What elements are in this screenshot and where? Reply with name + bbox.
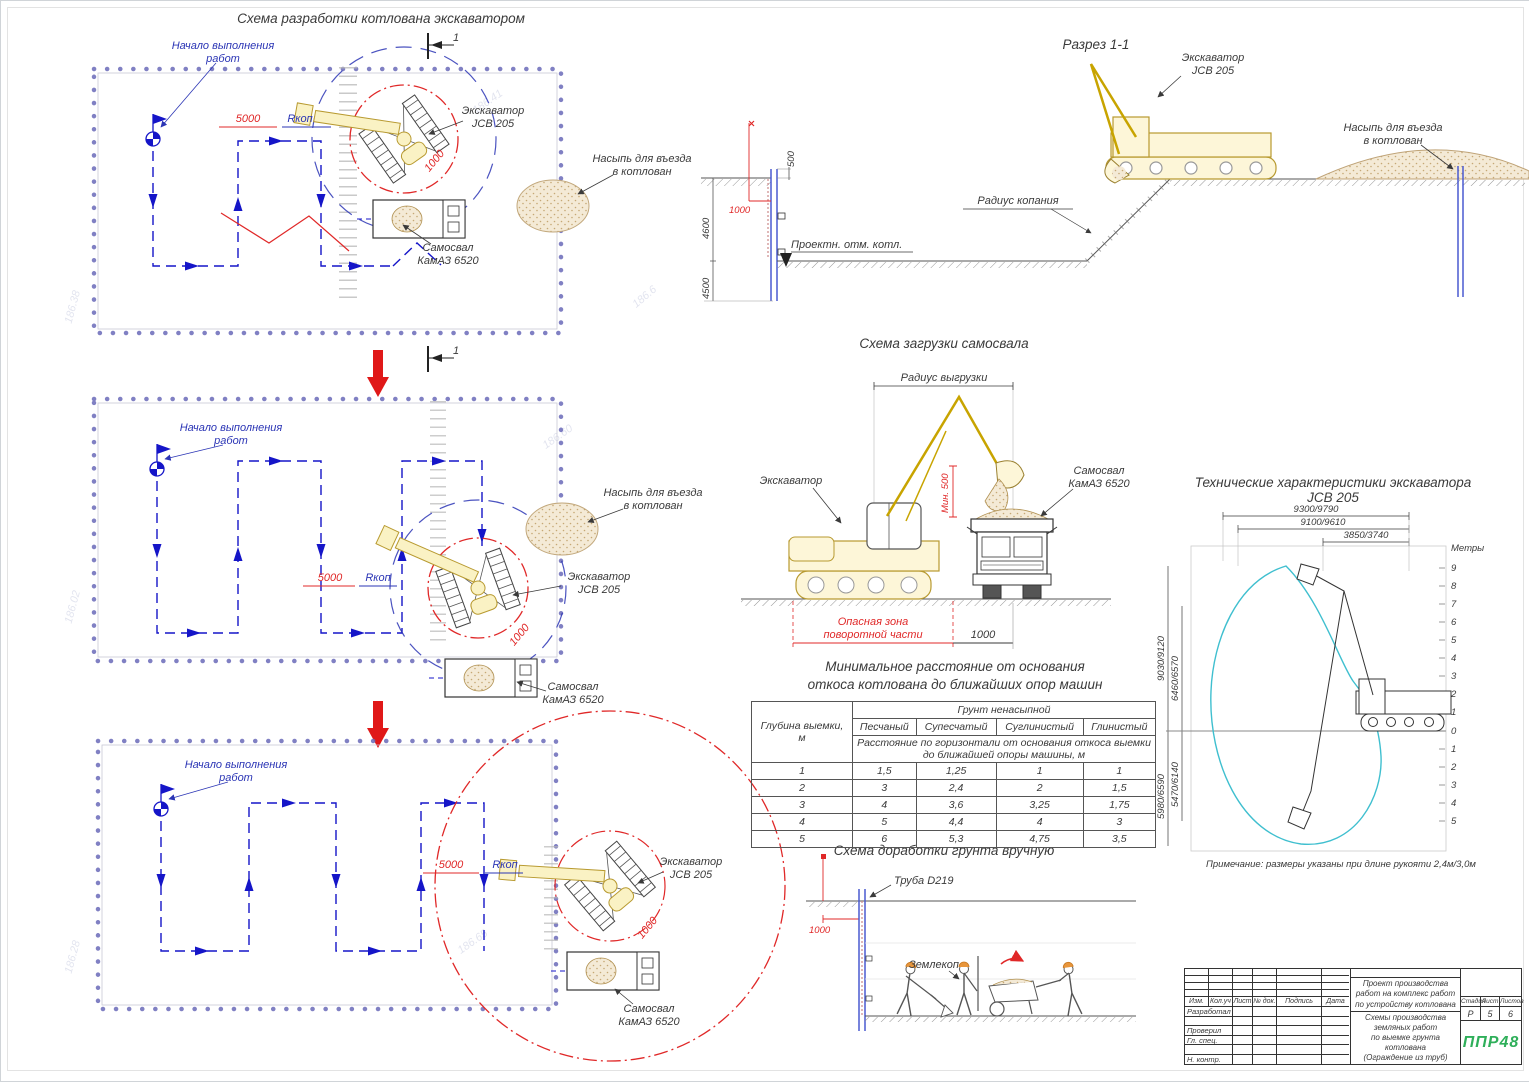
truck-label: Самосвал <box>623 1003 674 1015</box>
excavator-top-view <box>490 795 655 961</box>
start-label: работ <box>213 435 248 447</box>
signature-rows: Разработал Проверил Гл. спец. Н. контр. <box>1185 1007 1350 1065</box>
start-flag <box>154 784 175 816</box>
sheets-total: 6 <box>1500 1007 1521 1021</box>
dump-truck-top-view <box>429 659 537 697</box>
drawing-canvas: Схема разработки котлована экскаватором … <box>1 1 1529 1081</box>
start-label: Начало выполнения <box>185 759 288 771</box>
motion-arrow <box>1001 959 1023 964</box>
dim-5000: 5000 <box>236 113 261 125</box>
table-row: 343,63,251,75 <box>752 797 1156 814</box>
ramp-mound <box>526 503 598 555</box>
section-mark-number: 1 <box>453 32 459 44</box>
ground-hatch <box>701 179 771 186</box>
sheet-number: 5 <box>1481 1007 1500 1021</box>
start-label: работ <box>205 53 240 65</box>
company-logo: ППР48 <box>1461 1021 1521 1064</box>
excavator-model-label: JCB 205 <box>577 584 621 596</box>
excavator-label: Экскаватор <box>660 856 722 868</box>
dim-4600: 4600 <box>701 217 712 239</box>
dim-1000: 1000 <box>635 914 660 941</box>
table-title: Минимальное расстояние от основания <box>751 658 1159 676</box>
ramp-mound-section <box>1316 150 1529 179</box>
stage-value: Р <box>1461 1007 1481 1021</box>
min-500-label: Мин. 500 <box>940 473 951 513</box>
tech-title: Технические характеристики экскаватора <box>1195 475 1472 490</box>
truck-label: Самосвал <box>547 681 598 693</box>
scale-tick: 4 <box>1451 653 1456 664</box>
section-title: Разрез 1-1 <box>1063 37 1130 52</box>
start-label: Начало выполнения <box>172 40 275 52</box>
table-row: 454,443 <box>752 814 1156 831</box>
truck-model-label: КамАЗ 6520 <box>1068 478 1130 490</box>
excavator-side-view <box>1091 64 1276 183</box>
dim-5000: 5000 <box>439 859 464 871</box>
soil-header: Песчаный <box>853 719 917 736</box>
excavator-model-label: JCB 205 <box>1191 65 1235 77</box>
plan-3: Начало выполнения работ 5000 Rкоп 1000 Э… <box>98 711 785 1061</box>
dig-radius-label: Радиус копания <box>977 195 1058 207</box>
dim-top-1: 9300/9790 <box>1294 504 1340 515</box>
dim-4500: 4500 <box>701 277 712 299</box>
truck-model-label: КамАЗ 6520 <box>417 255 479 267</box>
table-row: 11,51,2511 <box>752 763 1156 780</box>
scale-unit: Метры <box>1451 543 1484 554</box>
stage-values: Р 5 6 <box>1461 1007 1521 1021</box>
mound-label: Насыпь для въезда <box>603 487 702 499</box>
scale-tick: 9 <box>1451 563 1457 574</box>
design-level-label: Проектн. отм. котл. <box>791 239 902 251</box>
truck-label: Самосвал <box>422 242 473 254</box>
mound-label: в котлован <box>612 166 671 178</box>
truck-model-label: КамАЗ 6520 <box>618 1016 680 1028</box>
scale-tick: 3 <box>1451 671 1457 682</box>
sheet-title: Схемы производства земляных работ по вые… <box>1351 1012 1460 1064</box>
truck-label: Самосвал <box>1073 465 1124 477</box>
soil-header: Глинистый <box>1083 719 1155 736</box>
col-depth-header: Глубина выемки,м <box>752 702 853 763</box>
dim-rkop: Rкоп <box>365 572 390 584</box>
tech-note: Примечание: размеры указаны при длине ру… <box>1206 859 1476 870</box>
excavator-label: Экскаватор <box>1182 52 1244 64</box>
dim-rkop: Rкоп <box>492 859 517 871</box>
plan-title: Схема разработки котлована экскаватором <box>237 11 525 26</box>
drawing-sheet: 186.38 186.41 186.6 186.02 186.60 186.65… <box>0 0 1529 1082</box>
excavator-model-label: JCB 205 <box>471 118 515 130</box>
soil-header: Суглинистый <box>996 719 1083 736</box>
start-flag <box>146 114 167 146</box>
excavator-model-label: JCB 205 <box>669 869 713 881</box>
ramp-mound <box>517 180 589 232</box>
section-1-1: Разрез 1-1 500 1000 4600 4500 Радиус коп… <box>701 37 1529 301</box>
scale-tick: 1 <box>1451 707 1456 718</box>
plan-2: Начало выполнения работ 5000 Rкоп 1000 Э… <box>94 399 703 706</box>
loading-scheme: Схема загрузки самосвала Радиус выгрузки… <box>741 336 1131 649</box>
danger-zone-label: Опасная зона <box>838 616 909 628</box>
excavator-label: Экскаватор <box>462 105 524 117</box>
dump-truck-front-view <box>967 509 1057 598</box>
section-mark-number: 1 <box>453 345 459 357</box>
mound-label: Насыпь для въезда <box>592 153 691 165</box>
scale-tick: 0 <box>1451 726 1457 737</box>
start-flag <box>150 444 171 476</box>
tech-title-model: JCB 205 <box>1306 490 1359 505</box>
pipe-fence <box>94 399 561 661</box>
mound-label: в котлован <box>623 500 682 512</box>
dim-1000: 1000 <box>729 205 751 216</box>
revision-grid <box>1185 969 1350 997</box>
sub-header: Расстояние по горизонтали от основания о… <box>853 736 1156 763</box>
dim-rkop: Rкоп <box>287 113 312 125</box>
dim-500: 500 <box>786 150 797 167</box>
dim-left-4: 5470/6140 <box>1170 761 1181 807</box>
scale-tick: 5 <box>1451 816 1457 827</box>
truck-model-label: КамАЗ 6520 <box>542 694 604 706</box>
start-label: работ <box>218 772 253 784</box>
soil-header: Супесчатый <box>916 719 996 736</box>
table-title: откоса котлована до ближайших опор машин <box>751 676 1159 694</box>
section-mark <box>428 346 454 372</box>
start-label: Начало выполнения <box>180 422 283 434</box>
loading-title: Схема загрузки самосвала <box>859 336 1029 351</box>
revision-header: Изм.Кол.уч Лист№ док. ПодписьДата <box>1185 997 1350 1007</box>
scale-tick: 1 <box>1451 744 1456 755</box>
excavator-label: Экскаватор <box>760 475 822 487</box>
dim-1000: 1000 <box>809 925 831 936</box>
scale-tick: 2 <box>1450 762 1457 773</box>
scale-tick: 7 <box>1451 599 1457 610</box>
pipe-label: Труба D219 <box>894 875 954 887</box>
project-title: Проект производства работ на комплекс ра… <box>1351 978 1460 1012</box>
dim-top-2: 9100/9610 <box>1301 517 1347 528</box>
excavator-top-view <box>371 491 520 644</box>
table-row: 565,34,753,5 <box>752 831 1156 848</box>
dim-5000: 5000 <box>318 572 343 584</box>
group-header: Грунт ненасыпной <box>853 702 1156 719</box>
excavator-envelope-view <box>1288 564 1451 829</box>
worker-middle <box>957 956 978 1015</box>
section-mark <box>428 33 454 59</box>
min-distance-table: Глубина выемки,м Грунт ненасыпной Песчан… <box>751 701 1156 848</box>
excavator-label: Экскаватор <box>568 571 630 583</box>
min-distance-table-block: Минимальное расстояние от основания отко… <box>751 658 1159 848</box>
worker-right <box>1059 961 1082 1015</box>
scale-tick: 3 <box>1451 780 1457 791</box>
table-row: 232,421,5 <box>752 780 1156 797</box>
dump-truck-top-view <box>357 200 465 238</box>
red-zigzag <box>221 213 349 251</box>
dim-top-3: 3850/3740 <box>1344 530 1390 541</box>
scale-tick: 5 <box>1451 635 1457 646</box>
manual-scheme: Схема доработки грунта вручную 1000 Труб… <box>806 843 1136 1031</box>
dim-left-2: 6460/6570 <box>1170 655 1181 701</box>
scale-tick: 8 <box>1451 581 1457 592</box>
stage-arrow <box>367 350 389 397</box>
tech-characteristics: Технические характеристики экскаватора J… <box>1156 475 1484 870</box>
title-block: Изм.Кол.уч Лист№ док. ПодписьДата Разраб… <box>1184 968 1522 1065</box>
wheelbarrow <box>989 979 1061 1016</box>
mound-label: в котлован <box>1363 135 1422 147</box>
dump-truck-top-view <box>551 952 659 990</box>
slope-line <box>1087 179 1170 261</box>
scale-tick: 4 <box>1451 798 1456 809</box>
dim-1000: 1000 <box>971 629 996 641</box>
mound-label: Насыпь для въезда <box>1343 122 1442 134</box>
scale-tick: 6 <box>1451 617 1457 628</box>
pit-bottom-hatch <box>777 262 1087 268</box>
plan-1: Схема разработки котлована экскаватором … <box>94 11 692 372</box>
stage-header: СтадияЛистЛистов <box>1461 997 1521 1007</box>
digger-label: Землекоп <box>909 959 959 971</box>
unload-radius-label: Радиус выгрузки <box>901 372 988 384</box>
danger-zone-label: поворотной части <box>823 629 922 641</box>
